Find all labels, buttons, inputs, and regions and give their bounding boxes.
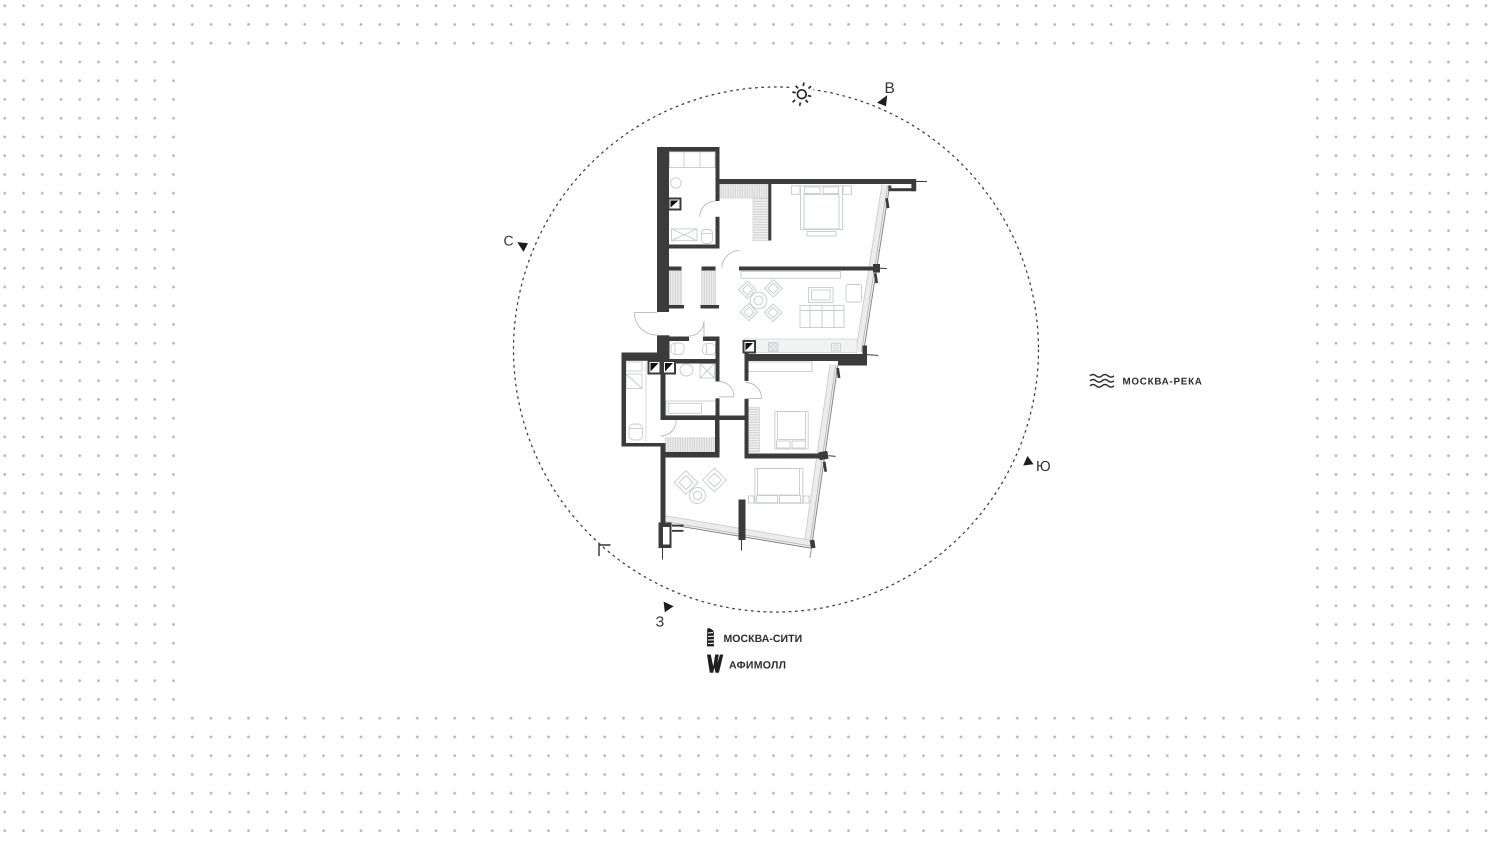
svg-text:В: В — [885, 80, 895, 97]
svg-text:АФИМОЛЛ: АФИМОЛЛ — [729, 659, 786, 671]
svg-text:МОСКВА-РЕКА: МОСКВА-РЕКА — [1123, 376, 1203, 387]
svg-text:З: З — [656, 614, 665, 630]
svg-text:Ю: Ю — [1036, 459, 1051, 475]
svg-text:МОСКВА-СИТИ: МОСКВА-СИТИ — [724, 633, 803, 645]
svg-text:С: С — [504, 233, 514, 249]
